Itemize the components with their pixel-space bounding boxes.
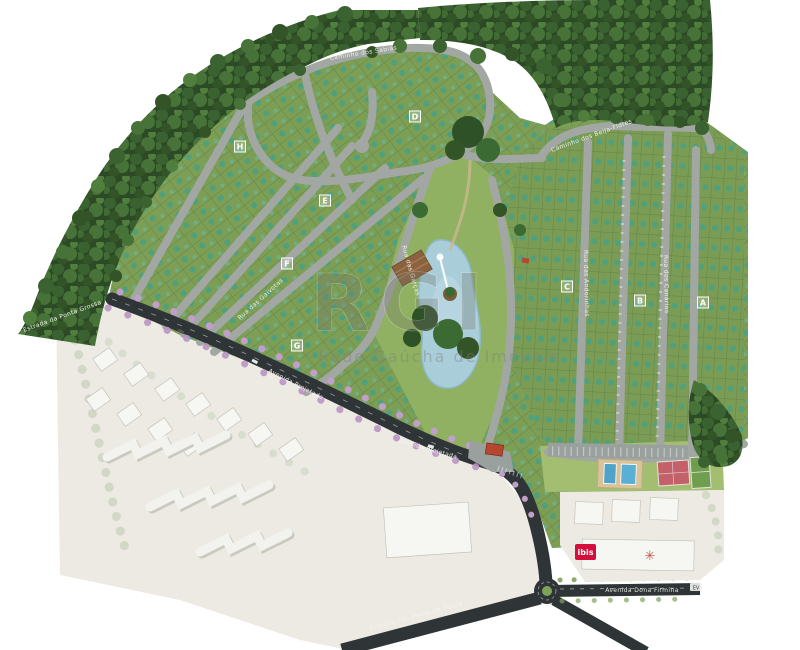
svg-text:H: H [237, 143, 244, 152]
ibis-hotel-label: ibis [578, 548, 594, 557]
gatehouse [485, 443, 503, 456]
svg-text:G: G [294, 342, 301, 351]
block-label-c: C [562, 281, 573, 292]
svg-text:A: A [700, 299, 707, 308]
masterplan-svg: ibis ✳ [0, 0, 800, 650]
block-label-g: G [292, 340, 303, 351]
block-label-e: E [320, 195, 331, 206]
block-label-d: D [410, 111, 421, 122]
street-label-rua-dos-canarios: Rua dos Canários [662, 255, 670, 314]
club-parking [548, 443, 688, 459]
watermark-mark: RGI [310, 259, 493, 349]
hotel-building [582, 539, 695, 571]
svg-text:D: D [412, 113, 419, 122]
svg-text:EV: EV [693, 586, 700, 592]
svg-text:F: F [284, 260, 289, 269]
block-label-b: B [635, 295, 646, 306]
svg-text:B: B [637, 297, 643, 306]
masterplan-page: ibis ✳ [0, 0, 800, 650]
block-label-f: F [282, 258, 293, 269]
red-flower-logo: ✳ [645, 549, 656, 564]
block-label-a: A [698, 297, 709, 308]
watermark-text: Rede Gaúcha de Imóveis [318, 347, 561, 366]
svg-text:C: C [564, 283, 570, 292]
road-tag-ev: EV [690, 583, 702, 592]
pool-main [621, 464, 637, 485]
faded-commercial: ibis ✳ [560, 490, 724, 582]
svg-text:E: E [322, 197, 327, 206]
block-label-h: H [235, 141, 246, 152]
pool-small [604, 463, 617, 483]
street-label-avenida-dona-firmina: Avenida Dona Firmina [605, 587, 679, 594]
street-label-rua-das-andorinhas: Rua das Andorinhas [582, 250, 590, 317]
